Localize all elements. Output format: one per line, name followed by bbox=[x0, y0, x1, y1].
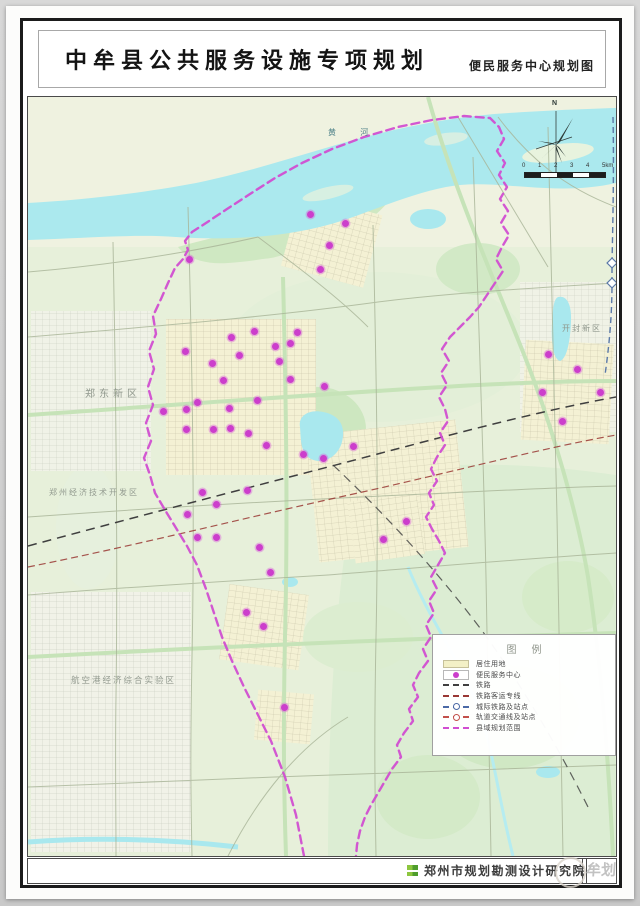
legend-symbol-dash bbox=[443, 695, 469, 697]
legend: 图例 居住用地便民服务中心铁路铁路客运专线城际铁路及站点轨道交通线及站点县域规划… bbox=[432, 634, 616, 756]
service-center-dot bbox=[267, 569, 274, 576]
service-center-dot bbox=[300, 451, 307, 458]
service-center-dot bbox=[194, 534, 201, 541]
service-center-dot bbox=[321, 383, 328, 390]
service-center-dot bbox=[272, 343, 279, 350]
legend-items: 居住用地便民服务中心铁路铁路客运专线城际铁路及站点轨道交通线及站点县域规划范围 bbox=[433, 659, 615, 733]
region-label: 开封新区 bbox=[562, 323, 602, 334]
service-center-dot bbox=[213, 534, 220, 541]
service-center-dot bbox=[539, 389, 546, 396]
service-center-dot bbox=[184, 511, 191, 518]
service-center-dot bbox=[403, 518, 410, 525]
service-center-dot bbox=[227, 425, 234, 432]
service-center-dot bbox=[213, 501, 220, 508]
scale-tick: 1 bbox=[538, 163, 541, 169]
service-center-dot bbox=[597, 389, 604, 396]
legend-symbol-dash-dot bbox=[443, 716, 469, 718]
scale-tick: 4 bbox=[586, 163, 589, 169]
legend-symbol-dot bbox=[443, 670, 469, 680]
legend-item: 轨道交通线及站点 bbox=[433, 712, 615, 723]
service-center-dot bbox=[226, 405, 233, 412]
service-center-dot bbox=[307, 211, 314, 218]
title-bar: 中牟县公共服务设施专项规划 便民服务中心规划图 bbox=[38, 30, 606, 88]
legend-symbol-dash bbox=[443, 684, 469, 686]
service-center-dot bbox=[210, 426, 217, 433]
scale-tick: 2 bbox=[554, 163, 557, 169]
service-center-dot bbox=[220, 377, 227, 384]
region-label: 航空港经济综合实验区 bbox=[71, 674, 176, 686]
service-center-dot bbox=[160, 408, 167, 415]
region-label: 黄 河 bbox=[328, 127, 379, 138]
scale-strip bbox=[524, 172, 606, 178]
scale-tick: 3 bbox=[570, 163, 573, 169]
service-center-dot bbox=[251, 328, 258, 335]
service-center-dot bbox=[380, 536, 387, 543]
service-center-dot bbox=[294, 329, 301, 336]
legend-label: 县域规划范围 bbox=[476, 723, 521, 733]
service-center-dot bbox=[245, 430, 252, 437]
page-title: 中牟县公共服务设施专项规划 bbox=[39, 43, 429, 75]
scale-tick: 0 bbox=[522, 163, 525, 169]
service-center-dot bbox=[287, 340, 294, 347]
service-center-dot bbox=[559, 418, 566, 425]
service-center-dot bbox=[260, 623, 267, 630]
service-center-dot bbox=[574, 366, 581, 373]
service-center-dot bbox=[199, 489, 206, 496]
service-center-dot bbox=[342, 220, 349, 227]
legend-item: 铁路客运专线 bbox=[433, 691, 615, 702]
service-center-dot bbox=[320, 455, 327, 462]
photo-of-plan-document: { "page_title": { "main": "中牟县公共服务设施专项规划… bbox=[0, 0, 640, 906]
legend-item: 便民服务中心 bbox=[433, 670, 615, 681]
service-center-dot bbox=[244, 487, 251, 494]
service-center-dot bbox=[545, 351, 552, 358]
service-center-dot bbox=[263, 442, 270, 449]
scale-bar: 012345km bbox=[524, 163, 612, 183]
service-center-dot bbox=[256, 544, 263, 551]
legend-item: 居住用地 bbox=[433, 659, 615, 670]
legend-label: 居住用地 bbox=[476, 659, 506, 669]
legend-title: 图例 bbox=[433, 635, 615, 659]
planning-map: N 012345km 黄 河郑东新区开封新区郑州经济技术开发区航空港经济综合实验… bbox=[27, 96, 617, 857]
legend-item: 县域规划范围 bbox=[433, 723, 615, 734]
page-subtitle: 便民服务中心规划图 bbox=[469, 57, 605, 74]
institute-logo-icon bbox=[407, 865, 418, 876]
legend-label: 铁路 bbox=[476, 680, 491, 690]
legend-label: 铁路客运专线 bbox=[476, 691, 521, 701]
legend-symbol-dashes bbox=[443, 727, 469, 729]
legend-item: 城际铁路及站点 bbox=[433, 701, 615, 712]
legend-symbol-swatch bbox=[443, 660, 469, 668]
service-center-dot bbox=[317, 266, 324, 273]
footer-bar: 郑州市规划勘测设计研究院 牟划 bbox=[27, 858, 617, 884]
service-center-dot bbox=[350, 443, 357, 450]
service-center-dot bbox=[183, 406, 190, 413]
service-center-dot bbox=[183, 426, 190, 433]
legend-item: 铁路 bbox=[433, 680, 615, 691]
region-label: 郑州经济技术开发区 bbox=[49, 487, 139, 498]
map-sheet-frame: 中牟县公共服务设施专项规划 便民服务中心规划图 bbox=[20, 18, 622, 888]
region-label: 郑东新区 bbox=[85, 385, 141, 400]
service-center-dot bbox=[276, 358, 283, 365]
service-center-dot bbox=[326, 242, 333, 249]
service-center-dot bbox=[228, 334, 235, 341]
service-center-dot bbox=[209, 360, 216, 367]
legend-symbol-dash-dot bbox=[443, 706, 469, 708]
service-center-dot bbox=[254, 397, 261, 404]
legend-label: 城际铁路及站点 bbox=[476, 702, 529, 712]
scale-tick: 5km bbox=[602, 163, 613, 169]
legend-label: 轨道交通线及站点 bbox=[476, 712, 536, 722]
north-label: N bbox=[552, 100, 557, 107]
watermark-circle-icon bbox=[555, 857, 586, 888]
legend-label: 便民服务中心 bbox=[476, 670, 521, 680]
document-page: 中牟县公共服务设施专项规划 便民服务中心规划图 bbox=[6, 6, 634, 899]
service-center-dot bbox=[236, 352, 243, 359]
watermark-text: 牟划 bbox=[585, 859, 617, 883]
service-center-dot bbox=[186, 256, 193, 263]
service-center-dot bbox=[182, 348, 189, 355]
service-center-dot bbox=[287, 376, 294, 383]
service-center-dot bbox=[243, 609, 250, 616]
service-center-dot bbox=[281, 704, 288, 711]
service-center-dot bbox=[194, 399, 201, 406]
